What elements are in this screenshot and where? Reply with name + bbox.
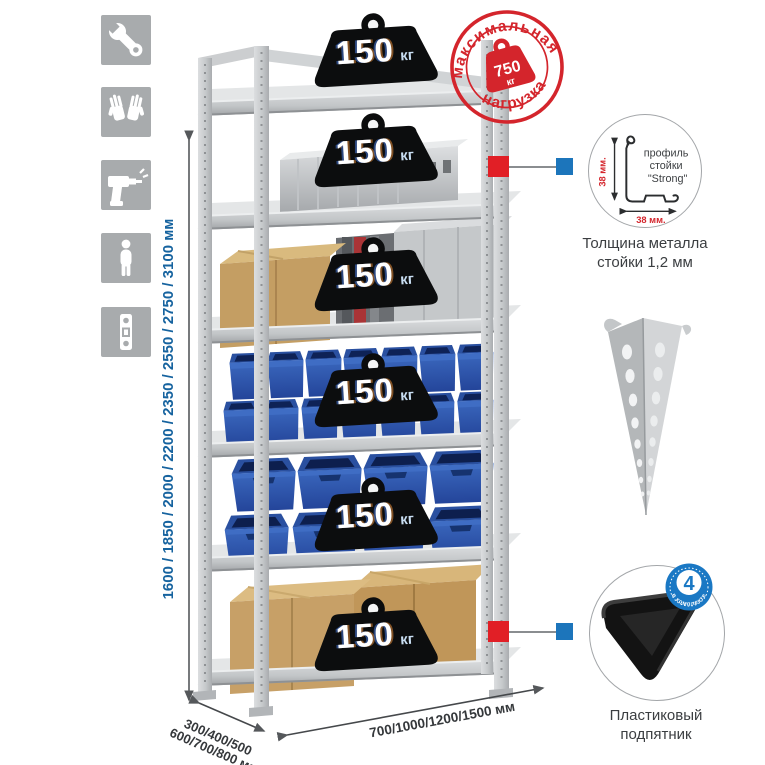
depth-dimension-label: 300/400/500 600/700/800 мм: [168, 712, 267, 765]
width-dimension-label: 700/1000/1200/1500 мм: [368, 699, 516, 741]
included-count-badge: 4 в комплекте: [662, 560, 716, 614]
profile-callout-connector: [488, 156, 573, 177]
profile-dim-vertical: 38 мм.: [598, 157, 608, 186]
profile-detail-circle: 38 мм. 38 мм. профиль стойки "Strong": [588, 114, 702, 228]
upright-corner-profile-image: [596, 310, 700, 522]
foot-callout-connector: [488, 621, 573, 642]
badge-value: 4: [683, 573, 695, 595]
product-infographic: 150кг 150кг 150кг 150кг 150кг 150кг макс…: [0, 0, 765, 765]
foot-caption: Пластиковый подпятник: [585, 707, 727, 745]
height-options-label: 1600 / 1850 / 2000 / 2200 / 2350 / 2550 …: [160, 184, 180, 634]
profile-dim-horizontal: 38 мм.: [636, 215, 665, 225]
profile-caption: Толщина металла стойки 1,2 мм: [565, 235, 725, 273]
profile-label: профиль стойки "Strong": [644, 147, 692, 185]
